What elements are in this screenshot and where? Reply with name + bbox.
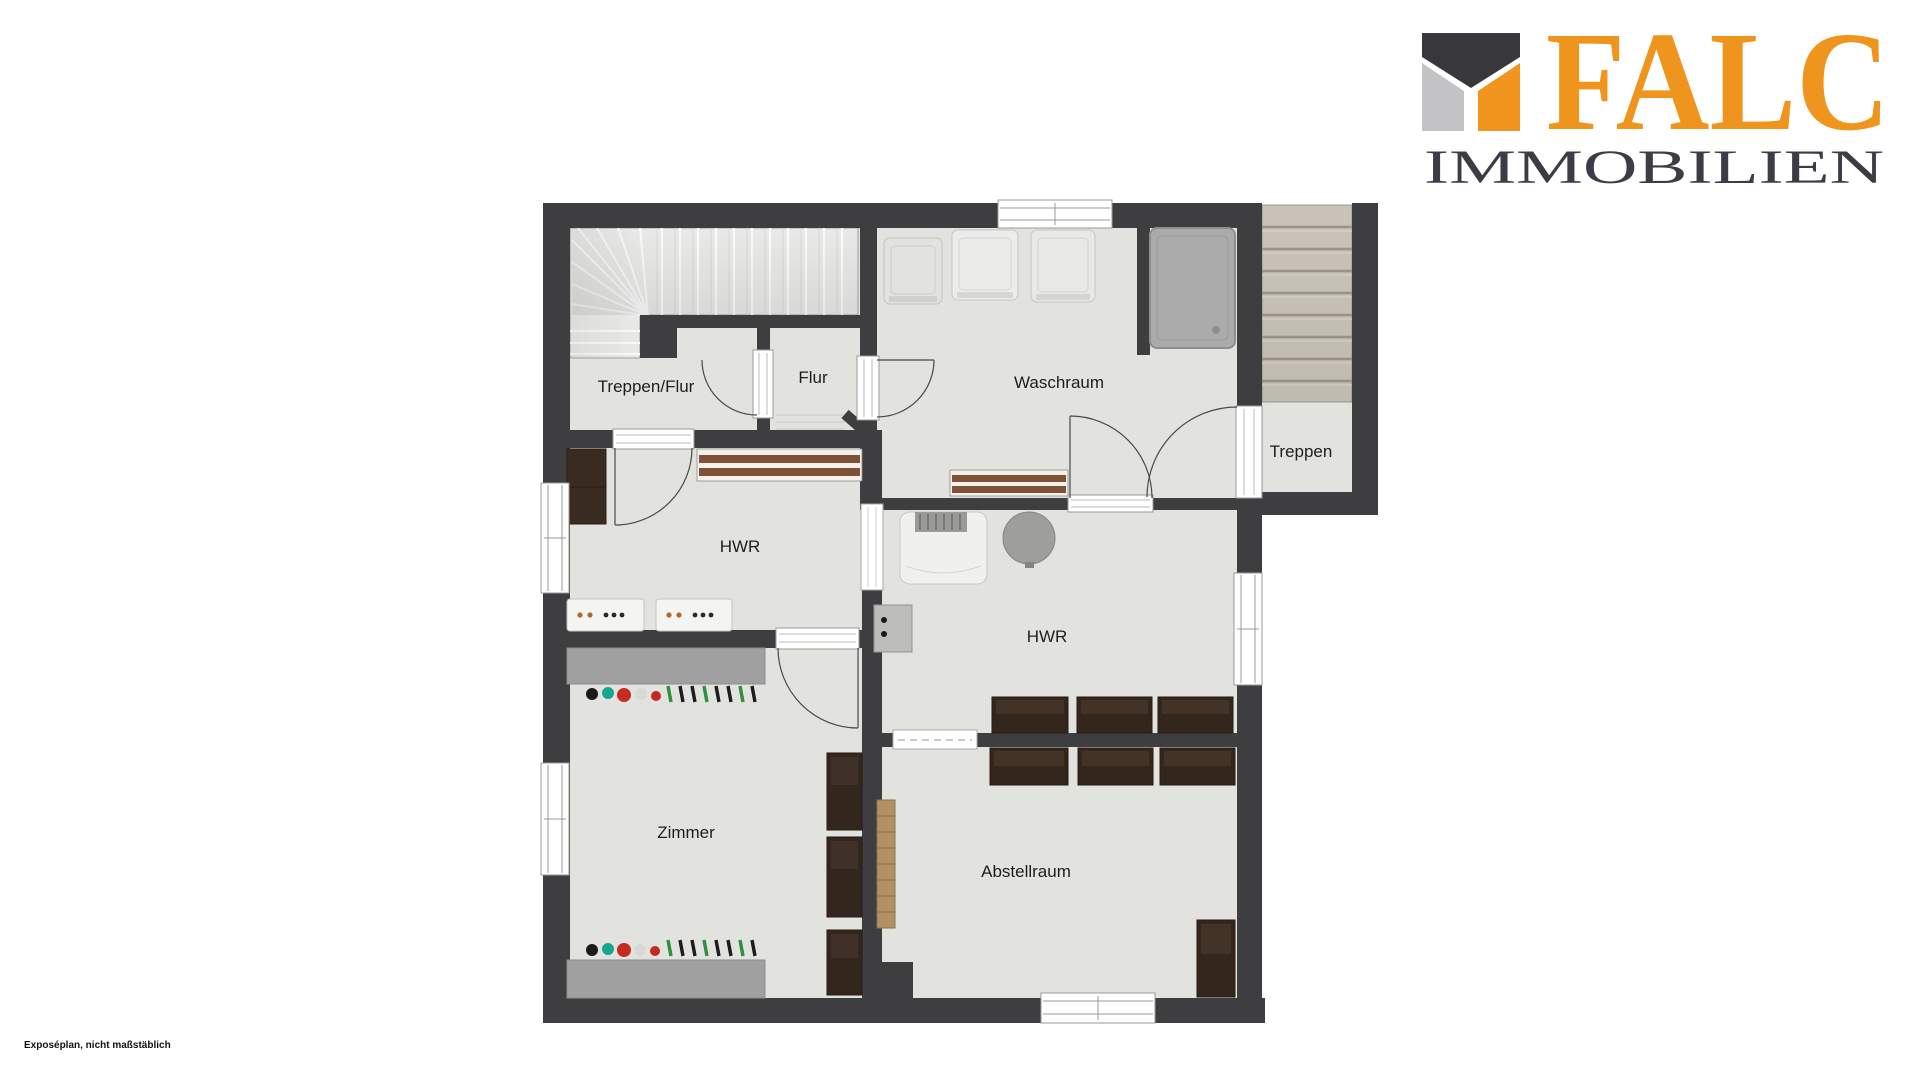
window <box>1234 573 1262 685</box>
boiler <box>900 512 987 584</box>
falc-logo-brand-text: FALC <box>1546 2 1890 160</box>
floor-plan-page: { "logo": { "brand": "FALC", "subtitle":… <box>0 0 1920 1080</box>
washing-machine <box>884 238 942 304</box>
shelf-unit <box>990 748 1068 785</box>
shelf-unit <box>1077 697 1152 733</box>
room-label-hwr-right: HWR <box>1027 627 1068 646</box>
storage-box <box>827 930 862 995</box>
room-label-waschraum: Waschraum <box>1014 373 1104 392</box>
room-label-treppen: Treppen <box>1270 442 1333 461</box>
dresser <box>567 449 606 524</box>
electric-meter-box <box>656 599 732 631</box>
falc-logo-subtitle-text: IMMOBILIEN <box>1424 141 1884 194</box>
shelf-unit <box>1160 748 1235 785</box>
electric-meter-box <box>567 599 644 631</box>
storage-box <box>1197 920 1235 997</box>
shelf-unit <box>1158 697 1233 733</box>
falc-logo-mark <box>1422 33 1520 131</box>
window <box>998 200 1112 228</box>
washing-machine <box>1031 230 1095 302</box>
radiator <box>950 470 1068 496</box>
window <box>541 763 569 875</box>
window <box>541 483 569 593</box>
wall-opening <box>861 504 883 590</box>
room-label-zimmer: Zimmer <box>657 823 715 842</box>
washing-machine <box>952 230 1018 300</box>
storage-box <box>827 753 862 830</box>
scale-disclaimer: Exposéplan, nicht maßstäblich <box>24 1040 171 1051</box>
fuse-panel <box>874 605 912 652</box>
room-label-hwr-left: HWR <box>720 537 761 556</box>
window <box>1041 993 1155 1023</box>
falc-logo: FALC IMMOBILIEN <box>1422 2 1890 194</box>
room-label-treppen-flur: Treppen/Flur <box>598 377 695 396</box>
workbench <box>567 648 765 684</box>
storage-box <box>827 837 862 917</box>
ladder-shelf <box>877 800 895 928</box>
workbench <box>567 960 765 998</box>
floor-plan-drawing: Treppen/Flur Flur Waschraum Treppen HWR … <box>0 0 1920 1080</box>
treppen-staircase <box>1262 205 1352 402</box>
room-label-flur: Flur <box>798 368 828 387</box>
wall-opening <box>893 730 977 749</box>
shelf-unit <box>992 697 1068 733</box>
shelf-unit <box>1078 748 1153 785</box>
room-label-abstellraum: Abstellraum <box>981 862 1071 881</box>
shower-tray <box>1150 228 1235 348</box>
radiator <box>697 449 862 481</box>
